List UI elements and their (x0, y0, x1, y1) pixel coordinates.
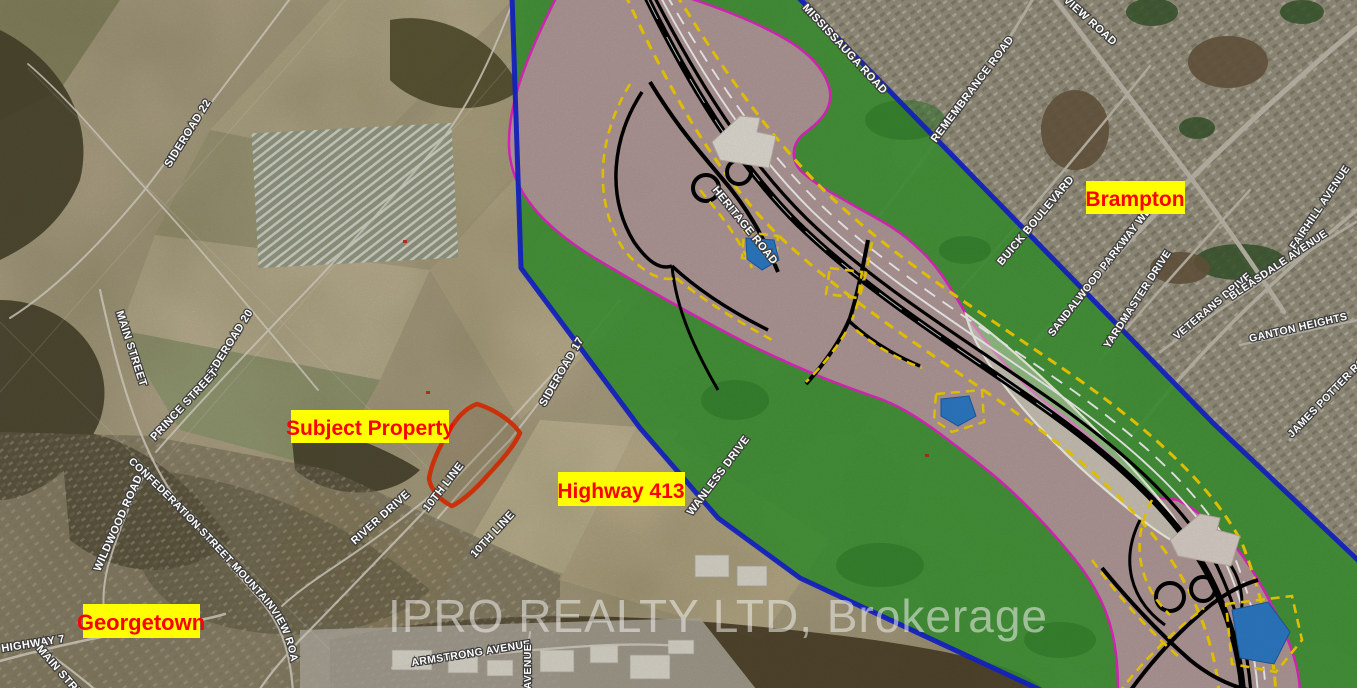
map-canvas: MISSISSAUGA ROAD REMEMBRANCE ROAD VIEW R… (0, 0, 1357, 688)
georgetown-label-text: Georgetown (77, 610, 205, 635)
subject-property-label-text: Subject Property (286, 417, 454, 440)
callout-subject-property: Subject Property (286, 410, 454, 443)
brokerage-watermark: IPRO REALTY LTD, Brokerage (388, 590, 1048, 642)
brampton-label-text: Brampton (1085, 188, 1184, 211)
city-label-brampton: Brampton (1085, 181, 1185, 214)
highway-413-label-text: Highway 413 (557, 480, 684, 503)
callout-highway-413: Highway 413 (557, 472, 685, 506)
city-label-georgetown: Georgetown (77, 604, 205, 638)
aerial-map: MISSISSAUGA ROAD REMEMBRANCE ROAD VIEW R… (0, 0, 1357, 688)
road-label-sinclair-avenue: SINCLAIR AVENUE (522, 644, 534, 688)
